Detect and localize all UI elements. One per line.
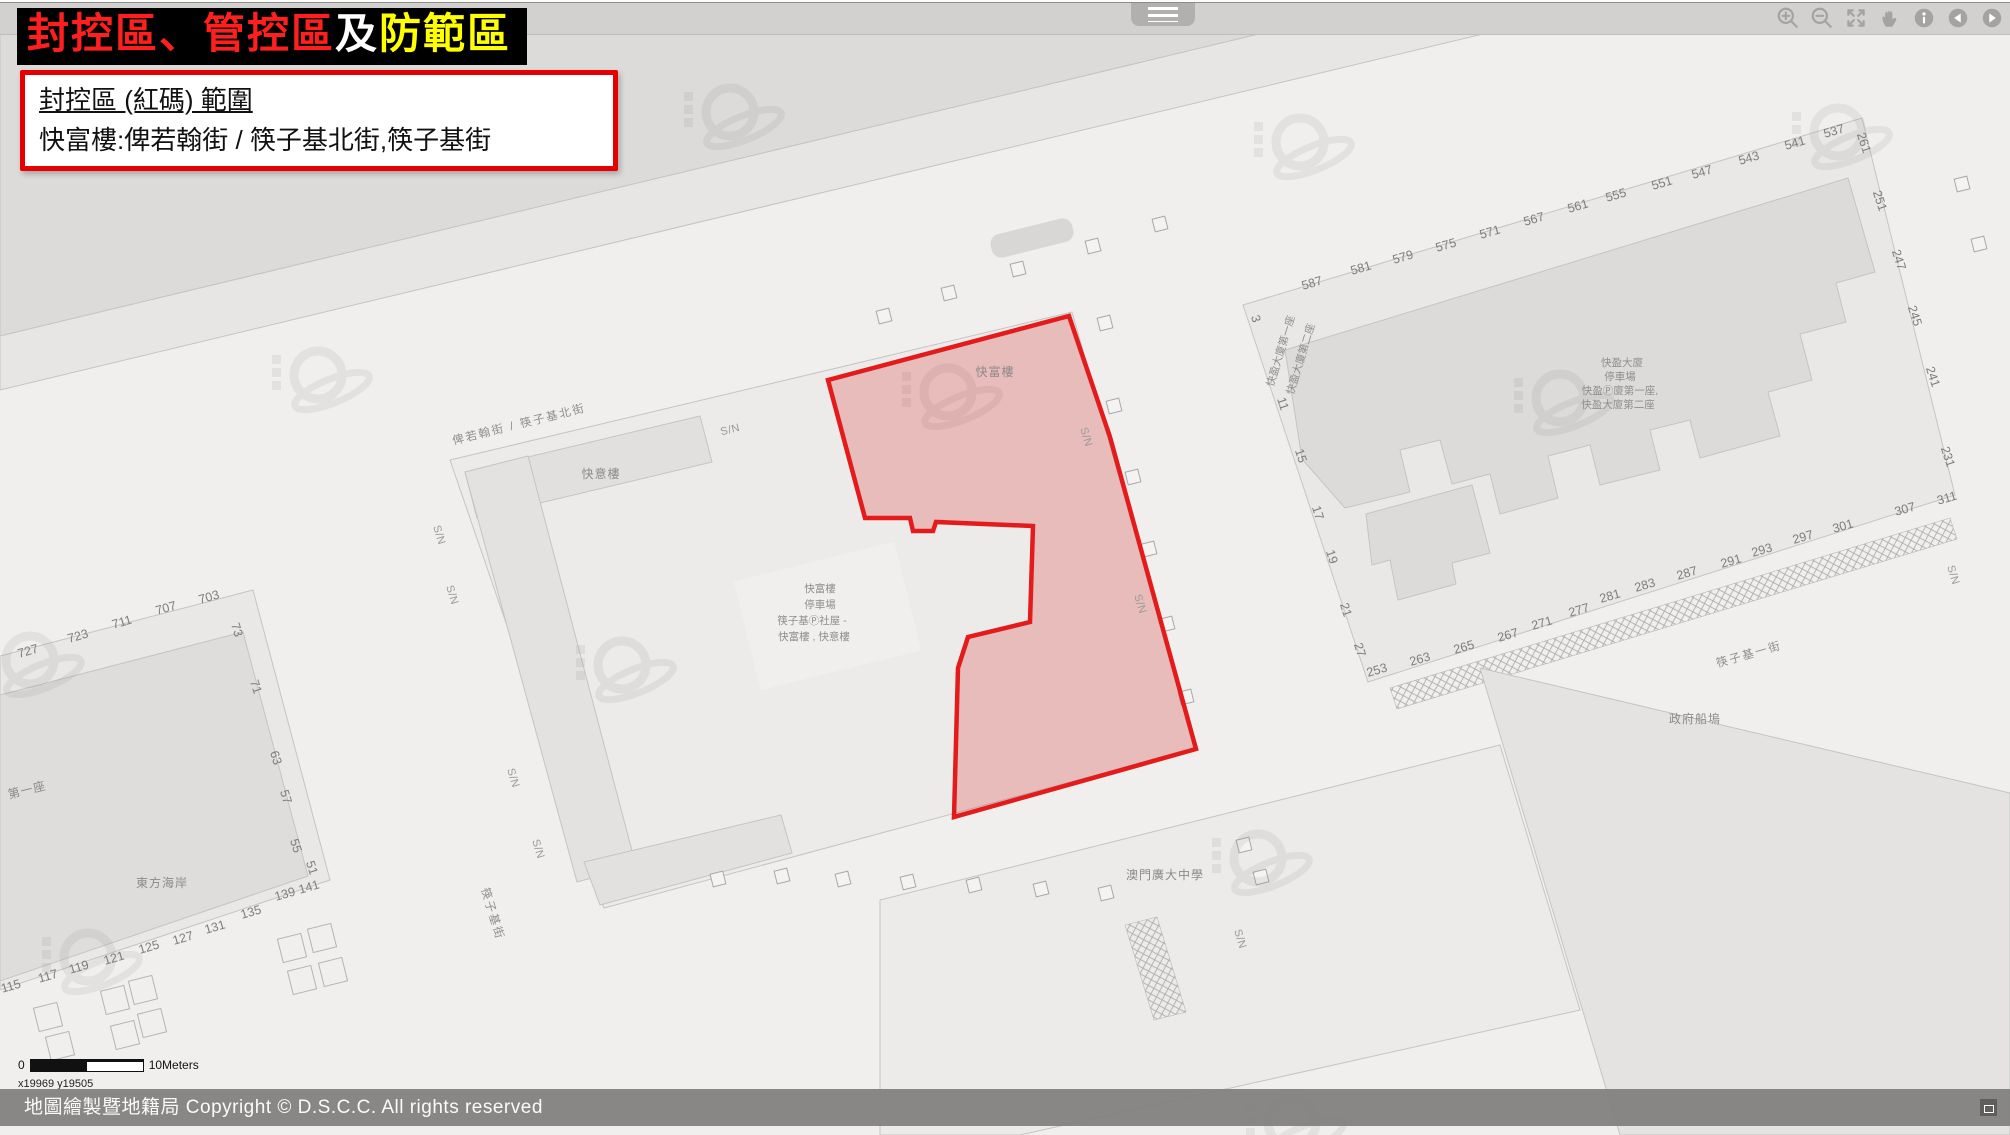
scale-start-label: 0 [18, 1058, 25, 1072]
info-icon [1912, 6, 1936, 30]
svg-text:停車場: 停車場 [1604, 370, 1636, 383]
identify-button[interactable] [1912, 6, 1936, 30]
svg-text:快盈Ⓟ廈第一座,: 快盈Ⓟ廈第一座, [1582, 384, 1658, 397]
scale-end-label: 10Meters [149, 1058, 199, 1072]
grip-icon [1148, 7, 1178, 22]
panel-collapse-handle[interactable] [1131, 3, 1195, 26]
zoom-out-icon [1810, 6, 1834, 30]
zone-info-box: 封控區 (紅碼) 範圍 快富樓:俾若翰街 / 筷子基北街,筷子基街 [20, 70, 618, 171]
svg-text:筷子基Ⓟ社屋 -: 筷子基Ⓟ社屋 - [777, 614, 847, 627]
zone-info-detail: 快富樓:俾若翰街 / 筷子基北街,筷子基街 [39, 120, 599, 157]
svg-text:澳門廣大中學: 澳門廣大中學 [1126, 867, 1204, 882]
previous-extent-button[interactable] [1946, 6, 1970, 30]
svg-text:快意樓: 快意樓 [581, 466, 620, 481]
footer-bar: 地圖繪製暨地籍局 Copyright © D.S.C.C. All rights… [0, 1089, 2010, 1126]
zoom-in-button[interactable] [1776, 6, 1800, 30]
copyright-text: 地圖繪製暨地籍局 Copyright © D.S.C.C. All rights… [24, 1097, 543, 1118]
svg-text:快富樓: 快富樓 [975, 364, 1014, 379]
scale-bar: 0 10Meters [18, 1058, 199, 1072]
svg-text:政府船塢: 政府船塢 [1669, 711, 1721, 726]
svg-text:快富樓 , 快意樓: 快富樓 , 快意樓 [778, 630, 850, 643]
svg-text:東方海岸: 東方海岸 [136, 875, 188, 890]
full-extent-icon [1844, 6, 1868, 30]
page-title-segment: 封控區、管控區 [27, 10, 335, 57]
page-title-segment: 防範區 [379, 10, 511, 57]
pan-button[interactable] [1878, 6, 1902, 30]
arrow-right-icon [1980, 6, 2004, 30]
zoom-in-icon [1776, 6, 1800, 30]
arrow-left-icon [1946, 6, 1970, 30]
svg-text:快盈大廈: 快盈大廈 [1601, 356, 1643, 369]
full-extent-button[interactable] [1844, 6, 1868, 30]
scale-bar-graphic [30, 1059, 144, 1072]
footer-toggle-icon[interactable] [1980, 1099, 1997, 1116]
svg-text:快盈大廈第二座: 快盈大廈第二座 [1581, 398, 1655, 411]
next-extent-button[interactable] [1980, 6, 2004, 30]
page-title: 封控區、管控區及防範區 [17, 8, 527, 65]
svg-text:停車場: 停車場 [804, 598, 836, 611]
svg-text:快富樓: 快富樓 [804, 582, 836, 595]
zoom-out-button[interactable] [1810, 6, 1834, 30]
pan-hand-icon [1878, 6, 1902, 30]
page-title-segment: 及 [335, 10, 379, 57]
zone-info-title: 封控區 (紅碼) 範圍 [39, 80, 599, 117]
map-application: 俾若翰街 / 筷子基北街筷子基街筷子基一街快富樓快意樓東方海岸第一座澳門廣大中學… [0, 0, 2010, 1135]
map-toolbar [1776, 6, 2004, 30]
